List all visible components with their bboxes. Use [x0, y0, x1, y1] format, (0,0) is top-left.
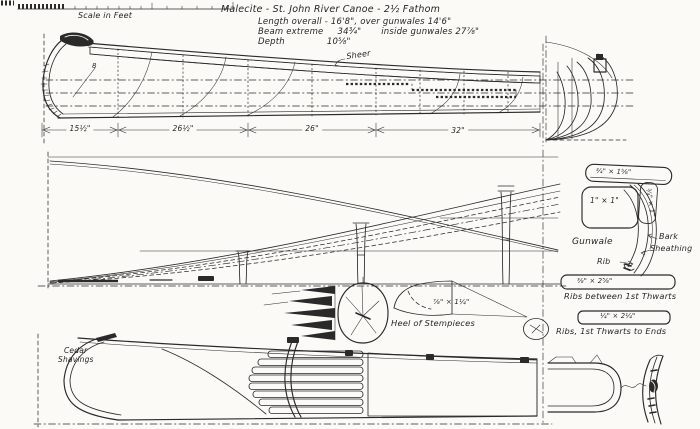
depth-spec: Depth10⅝" [258, 38, 351, 47]
scale-ruler [1, 2, 233, 9]
stempiece-laminations [264, 286, 335, 340]
canoe-plan-sheet: Scale in Feet Malecite - St. John River … [0, 0, 700, 429]
heel-profile [394, 281, 549, 340]
heel-dimension: ⅞" × 1¼" [433, 299, 469, 306]
bark-label: Bark [659, 233, 678, 241]
plan-view-drawing [34, 333, 552, 427]
depth-spec-value: 10⅝" [327, 37, 351, 47]
length-spec: Length overall - 16'8", over gunwales 14… [258, 18, 451, 27]
scale-label: Scale in Feet [78, 12, 132, 20]
beam-spec-value: 34¾" [337, 27, 361, 37]
profile-view-drawing [41, 33, 636, 146]
body-plan-sections [546, 36, 626, 142]
rib-end-caption: Ribs, 1st Thwarts to Ends [556, 327, 666, 335]
thwart-profile [353, 223, 369, 284]
rib-mid-dimension: ⅜" × 2⅝" [577, 278, 612, 285]
rib-end-dimension: ¼" × 2¼" [600, 313, 635, 320]
rib-mid-caption: Ribs between 1st Thwarts [564, 292, 676, 300]
dimension-label: 15½" [66, 125, 93, 133]
dimension-label: 26½" [169, 125, 196, 133]
drawing-title: Malecite - St. John River Canoe - 2½ Fat… [221, 5, 440, 15]
thwart-profile [498, 186, 514, 284]
heel-caption: Heel of Stempieces [391, 319, 475, 327]
canoe-drawing [0, 0, 700, 429]
rib-label: Rib [597, 258, 610, 266]
cedar-shavings-label-line2: Shavings [58, 356, 94, 364]
beam-spec-label: Beam extreme [258, 27, 323, 37]
cedar-shavings-label-line1: Cedar [64, 347, 87, 355]
bow-station-label: 8 [92, 63, 97, 70]
stem-side-detail [548, 355, 663, 424]
gunwale-label: Gunwale [572, 238, 613, 247]
sheathing-label: Sheathing [650, 245, 692, 253]
beam-spec-inside: inside gunwales 27⅞" [381, 27, 479, 37]
beam-spec: Beam extreme34¾"inside gunwales 27⅞" [258, 28, 479, 37]
cap-dimension: ¾" × 1⅝" [596, 168, 632, 176]
rib-ends-band [90, 47, 540, 83]
dimension-label: 26" [302, 125, 322, 133]
gunwale-cross-section [582, 164, 672, 276]
inwale-dimension: 1" × 1" [590, 197, 619, 205]
stempiece-cross-section [338, 277, 388, 343]
stem-slats [249, 351, 363, 414]
dimension-label: 32" [448, 127, 468, 135]
depth-spec-label: Depth [258, 37, 285, 47]
